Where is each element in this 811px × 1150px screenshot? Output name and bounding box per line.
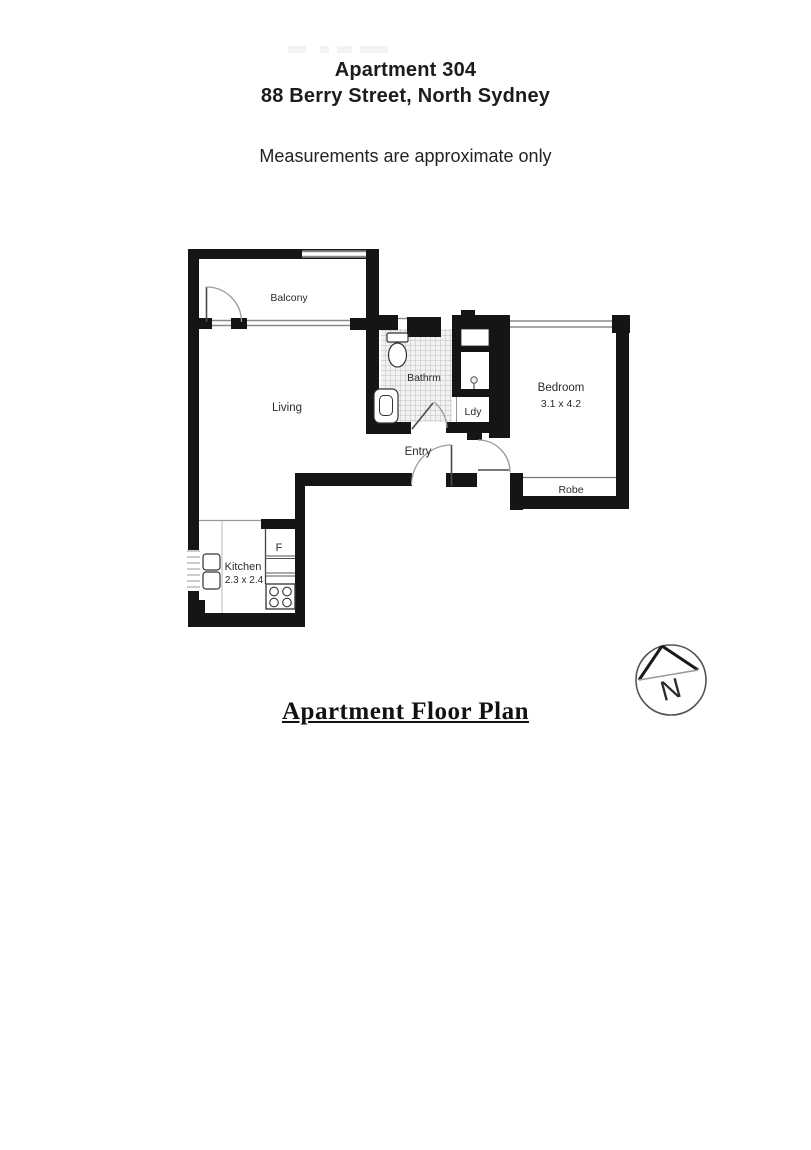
wall-segment (489, 315, 510, 438)
laundry-tub (461, 329, 489, 346)
room-label-robe: Robe (558, 484, 583, 496)
door-jamb (467, 433, 482, 440)
compass-needle (662, 646, 698, 670)
wall-segment (188, 318, 212, 329)
toilet-cistern (387, 333, 408, 342)
page: Apartment 304 88 Berry Street, North Syd… (0, 0, 811, 1150)
wall-segment (513, 496, 629, 509)
shower-tray (374, 389, 398, 423)
wall-segment (350, 318, 367, 330)
wall-segment (446, 422, 499, 433)
bedroom-door-arc (478, 440, 510, 472)
plan-caption: Apartment Floor Plan (0, 698, 811, 726)
wall-segment (366, 422, 411, 434)
wall-segment (452, 317, 461, 397)
room-label-balcony: Balcony (270, 292, 308, 304)
room-label-living: Living (272, 402, 302, 414)
floor-plan-drawing: Balcony Living Bathrm Ldy Entry Bedroom … (0, 0, 811, 1150)
toilet-bowl (389, 343, 407, 367)
wall-segment (452, 389, 499, 397)
fridge-label: F (276, 542, 283, 554)
wall-segment (295, 473, 412, 486)
wall-segment (188, 613, 305, 627)
wall-segment (446, 473, 477, 487)
room-label-bathroom: Bathrm (407, 372, 441, 384)
wall-segment (261, 519, 304, 529)
wall-segment (295, 473, 305, 627)
duct-block (407, 317, 441, 337)
room-label-entry: Entry (405, 446, 432, 458)
kitchen-sink (203, 572, 220, 589)
kitchen-sink (203, 554, 220, 570)
room-label-laundry: Ldy (465, 406, 483, 418)
wall-segment (366, 315, 398, 330)
wall-segment (188, 600, 205, 627)
room-label-kitchen: Kitchen (225, 561, 262, 573)
room-dim-kitchen: 2.3 x 2.4 (225, 575, 264, 586)
wall-segment (461, 310, 475, 317)
scan-artifacts (288, 46, 388, 53)
balcony-door-arc (207, 287, 242, 322)
wall-segment (616, 315, 629, 509)
room-label-bedroom: Bedroom (538, 382, 585, 394)
laundry-tap-icon (471, 377, 477, 383)
wall-segment (231, 318, 247, 329)
kitchen-window (187, 550, 201, 591)
room-dim-bedroom: 3.1 x 4.2 (541, 398, 581, 410)
